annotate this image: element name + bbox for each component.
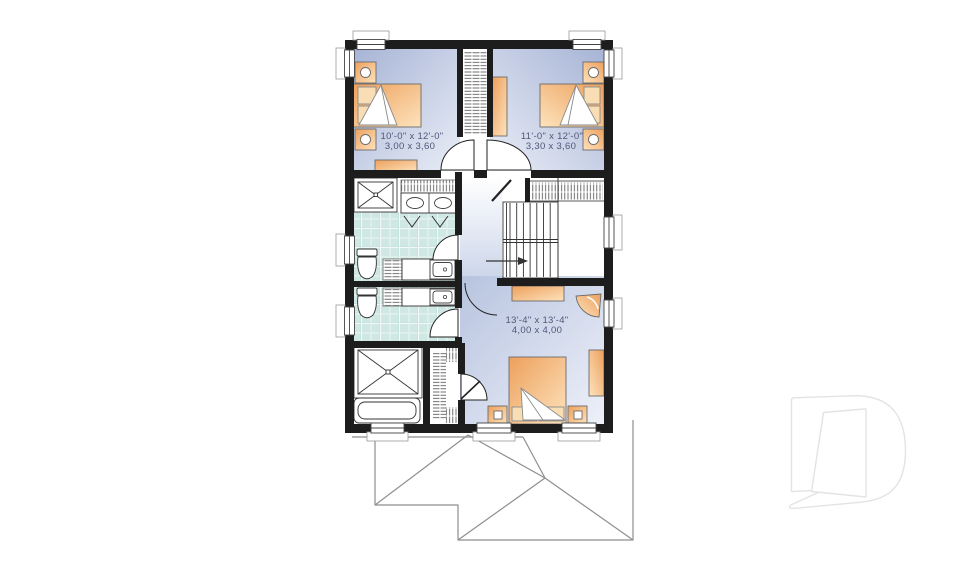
bedroom1-dimension-metric: 3,00 x 3,60 [385,141,435,152]
bedroom3-dimension-metric: 4,00 x 4,00 [512,325,562,336]
linen-closet [529,181,605,201]
nightstand-icon [583,129,604,150]
shower-icon [354,346,422,398]
dresser-icon [589,350,604,396]
dresser-icon [512,286,564,301]
drummond-d-logo-icon [790,396,906,509]
toilet-icon [357,249,377,279]
bed-icon [353,84,421,127]
hallway-floor [460,177,502,278]
closet-hatch-icon [464,52,487,134]
shower-icon [354,178,397,212]
bed-icon [509,357,566,424]
nightstand-icon [355,62,376,83]
sink-icon [383,288,457,306]
nightstand-icon [488,406,507,424]
floor-plan-page: 10'-0" x 12'-0" 3,00 x 3,60 11'-0" x 12'… [0,0,960,569]
toilet-icon [357,288,377,318]
bedroom2-dimension-metric: 3,30 x 3,60 [526,141,576,152]
nightstand-icon [583,62,604,83]
bed-icon [540,84,604,127]
nightstand-icon [355,129,376,150]
sink-icon [383,259,457,280]
dresser-icon [492,77,507,136]
bathtub-icon [354,398,420,423]
nightstand-icon [568,406,587,424]
